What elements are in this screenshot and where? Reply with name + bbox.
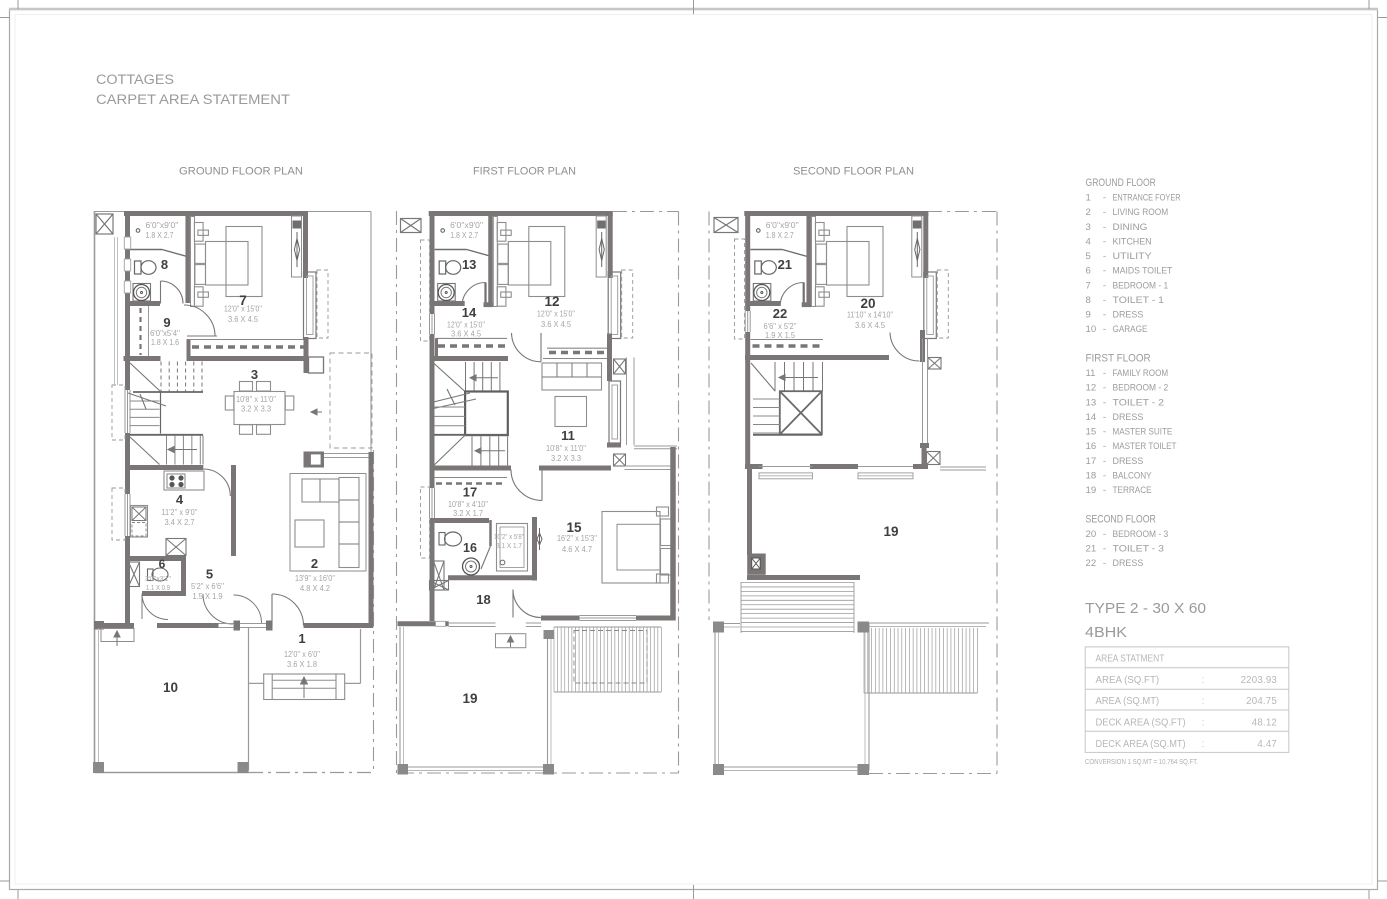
svg-text:1.5 X 1.9: 1.5 X 1.9 <box>193 592 224 601</box>
svg-text:BEDROOM - 2: BEDROOM - 2 <box>1113 383 1169 394</box>
svg-text:4.8 X 4.2: 4.8 X 4.2 <box>300 584 330 593</box>
svg-text:CONVERSION 1 SQ.MT = 10.764 SQ: CONVERSION 1 SQ.MT = 10.764 SQ.FT. <box>1085 757 1198 766</box>
svg-text:6'0''x9'0'': 6'0''x9'0'' <box>450 221 484 230</box>
svg-text:17: 17 <box>1086 456 1097 467</box>
svg-text:21: 21 <box>778 257 792 272</box>
svg-text:-: - <box>1103 207 1106 218</box>
svg-text:BEDROOM - 1: BEDROOM - 1 <box>1113 280 1169 291</box>
svg-text:DRESS: DRESS <box>1113 558 1144 569</box>
svg-text:16: 16 <box>1086 441 1097 452</box>
svg-text:FAMILY ROOM: FAMILY ROOM <box>1113 368 1169 379</box>
svg-text:11'10'' x 14'10'': 11'10'' x 14'10'' <box>847 311 893 320</box>
svg-text:11'2'' x 9'0'': 11'2'' x 9'0'' <box>162 508 198 517</box>
svg-text:5: 5 <box>206 567 213 582</box>
svg-text:18: 18 <box>1086 470 1097 481</box>
svg-text:20: 20 <box>860 296 875 311</box>
svg-text:-: - <box>1103 485 1106 496</box>
svg-text:3.6 X 1.8: 3.6 X 1.8 <box>287 660 318 669</box>
svg-text:-: - <box>1103 236 1106 247</box>
svg-text:6'0''x5'4'': 6'0''x5'4'' <box>150 329 180 338</box>
svg-text:1.8 X 1.6: 1.8 X 1.6 <box>151 338 179 347</box>
svg-text:FIRST FLOOR PLAN: FIRST FLOOR PLAN <box>473 166 576 178</box>
svg-text:10: 10 <box>1086 324 1097 335</box>
svg-text:6'0''x9'0'': 6'0''x9'0'' <box>146 221 180 230</box>
svg-text:16'2'' x 15'3'': 16'2'' x 15'3'' <box>557 534 597 543</box>
svg-text::: : <box>1202 718 1205 729</box>
svg-text:204.75: 204.75 <box>1246 696 1277 707</box>
svg-text:-: - <box>1103 383 1106 394</box>
svg-text:6'0''x9'0'': 6'0''x9'0'' <box>766 221 800 230</box>
svg-text:LIVING ROOM: LIVING ROOM <box>1113 207 1169 218</box>
svg-text:-: - <box>1103 470 1106 481</box>
svg-text:MASTER TOILET: MASTER TOILET <box>1113 441 1177 452</box>
svg-text:TYPE 2 - 30 X 60: TYPE 2 - 30 X 60 <box>1085 600 1206 617</box>
svg-text:12'0'' x 6'0'': 12'0'' x 6'0'' <box>284 650 320 659</box>
svg-text:-: - <box>1103 368 1106 379</box>
svg-text:GARAGE: GARAGE <box>1113 324 1148 335</box>
svg-text:20: 20 <box>1086 529 1097 540</box>
svg-text:KITCHEN: KITCHEN <box>1113 236 1152 247</box>
svg-text:6: 6 <box>1086 266 1091 277</box>
svg-text:22: 22 <box>773 306 787 321</box>
svg-text:13'9'' x 16'0'': 13'9'' x 16'0'' <box>295 574 335 583</box>
svg-text:1.1 X 0.9: 1.1 X 0.9 <box>146 585 170 592</box>
svg-text:3.6 X 4.5: 3.6 X 4.5 <box>451 330 482 339</box>
svg-text:7: 7 <box>1086 280 1091 291</box>
svg-text:COTTAGES: COTTAGES <box>96 72 174 88</box>
svg-text:12: 12 <box>544 294 559 309</box>
svg-text:-: - <box>1103 441 1106 452</box>
svg-text::: : <box>1202 675 1205 686</box>
svg-text::: : <box>1202 696 1205 707</box>
svg-text:3: 3 <box>1086 222 1091 233</box>
svg-text:-: - <box>1103 310 1106 321</box>
svg-text:DINING: DINING <box>1113 222 1148 233</box>
svg-text:TOILET - 2: TOILET - 2 <box>1113 397 1165 408</box>
svg-text:-: - <box>1103 280 1106 291</box>
svg-text:14: 14 <box>462 305 477 320</box>
svg-text:AREA STATMENT: AREA STATMENT <box>1096 654 1165 665</box>
svg-text:4BHK: 4BHK <box>1085 624 1127 641</box>
svg-text:2: 2 <box>311 556 318 571</box>
svg-text:10'2'' x 5'8'': 10'2'' x 5'8'' <box>494 532 525 541</box>
svg-text:12'0'' x 15'0'': 12'0'' x 15'0'' <box>224 305 262 314</box>
svg-text:8: 8 <box>161 257 168 272</box>
svg-text:3: 3 <box>251 367 258 382</box>
svg-text:-: - <box>1103 456 1106 467</box>
svg-text:12'0'' x 15'0'': 12'0'' x 15'0'' <box>537 310 575 319</box>
svg-text:12'0'' x 15'0'': 12'0'' x 15'0'' <box>447 321 485 330</box>
svg-text:10'8'' x 11'0'': 10'8'' x 11'0'' <box>236 395 276 404</box>
svg-text:6: 6 <box>159 557 166 571</box>
svg-text:18: 18 <box>476 592 490 607</box>
svg-text:10: 10 <box>163 680 178 695</box>
svg-text:1.8 X 2.7: 1.8 X 2.7 <box>450 231 478 240</box>
svg-text:3.6 X 4.5: 3.6 X 4.5 <box>855 321 886 330</box>
svg-text:19: 19 <box>462 691 477 706</box>
svg-text:-: - <box>1103 266 1106 277</box>
svg-text:GROUND FLOOR PLAN: GROUND FLOOR PLAN <box>179 166 303 178</box>
svg-text::: : <box>1202 739 1205 750</box>
svg-text:-: - <box>1103 427 1106 438</box>
svg-text:CARPET AREA STATEMENT: CARPET AREA STATEMENT <box>96 92 290 108</box>
svg-text:1.8 X 2.7: 1.8 X 2.7 <box>146 231 174 240</box>
svg-text:9: 9 <box>1086 310 1091 321</box>
svg-text:3.1 X 1.7: 3.1 X 1.7 <box>496 541 522 550</box>
svg-text:19: 19 <box>883 524 898 539</box>
svg-text:17: 17 <box>463 485 477 500</box>
svg-text:ENTRANCE FOYER: ENTRANCE FOYER <box>1113 193 1181 204</box>
svg-text:22: 22 <box>1086 558 1097 569</box>
svg-text:2203.93: 2203.93 <box>1241 675 1277 686</box>
svg-text:14: 14 <box>1086 412 1097 423</box>
svg-text:3.2 X 3.3: 3.2 X 3.3 <box>551 454 582 463</box>
svg-text:5'2'' x 6'6'': 5'2'' x 6'6'' <box>191 582 224 591</box>
svg-text:13: 13 <box>1086 397 1097 408</box>
svg-text:12: 12 <box>1086 383 1097 394</box>
svg-text:15: 15 <box>1086 427 1097 438</box>
svg-text:3.2 X 3.3: 3.2 X 3.3 <box>241 405 272 414</box>
svg-text:1: 1 <box>298 631 305 646</box>
svg-text:6'6'' x 5'2'': 6'6'' x 5'2'' <box>764 322 797 331</box>
svg-text:SECOND FLOOR PLAN: SECOND FLOOR PLAN <box>793 166 914 178</box>
svg-text:-: - <box>1103 544 1106 555</box>
svg-text:DECK AREA (SQ.MT): DECK AREA (SQ.MT) <box>1096 739 1186 750</box>
svg-text:15: 15 <box>566 520 582 535</box>
svg-text:-: - <box>1103 412 1106 423</box>
svg-text:TOILET - 1: TOILET - 1 <box>1113 295 1165 306</box>
svg-text:8: 8 <box>1086 295 1091 306</box>
svg-text:21: 21 <box>1086 544 1097 555</box>
svg-text:11: 11 <box>561 428 575 443</box>
svg-text:3.2 X 1.7: 3.2 X 1.7 <box>453 509 483 518</box>
svg-text:GROUND FLOOR: GROUND FLOOR <box>1086 177 1157 189</box>
svg-text:BALCONY: BALCONY <box>1113 470 1153 481</box>
svg-text:-: - <box>1103 558 1106 569</box>
svg-text:4.6 X 4.7: 4.6 X 4.7 <box>562 545 592 554</box>
svg-text:10'8'' x 11'0'': 10'8'' x 11'0'' <box>546 444 586 453</box>
svg-text:3.4 X 2.7: 3.4 X 2.7 <box>165 518 195 527</box>
svg-text:-: - <box>1103 222 1106 233</box>
svg-text:-: - <box>1103 193 1106 204</box>
svg-text:16: 16 <box>463 541 477 555</box>
svg-text:DRESS: DRESS <box>1113 310 1144 321</box>
svg-text:10'8'' x 4'10'': 10'8'' x 4'10'' <box>448 500 488 509</box>
svg-text:4: 4 <box>176 492 184 507</box>
svg-text:19: 19 <box>1086 485 1097 496</box>
svg-text:3.6 X 4.5: 3.6 X 4.5 <box>228 315 259 324</box>
svg-text:-: - <box>1103 295 1106 306</box>
svg-text:AREA (SQ.MT): AREA (SQ.MT) <box>1096 696 1160 707</box>
svg-text:1.9 X 1.5: 1.9 X 1.5 <box>765 331 796 340</box>
svg-text:BEDROOM - 3: BEDROOM - 3 <box>1113 529 1169 540</box>
svg-text:DRESS: DRESS <box>1113 412 1144 423</box>
svg-text:5: 5 <box>1086 251 1091 262</box>
svg-text:11: 11 <box>1086 368 1096 379</box>
svg-text:DECK AREA (SQ.FT): DECK AREA (SQ.FT) <box>1096 718 1186 729</box>
svg-text:4: 4 <box>1086 236 1092 247</box>
svg-text:MAIDS TOILET: MAIDS TOILET <box>1113 266 1173 277</box>
svg-text:3.6 X 4.5: 3.6 X 4.5 <box>541 320 572 329</box>
svg-text:TOILET - 3: TOILET - 3 <box>1113 544 1165 555</box>
svg-text:TERRACE: TERRACE <box>1113 485 1152 496</box>
svg-text:48.12: 48.12 <box>1252 718 1277 729</box>
svg-text:13: 13 <box>462 257 476 272</box>
svg-text:UTILITY: UTILITY <box>1113 251 1153 262</box>
svg-text:-: - <box>1103 397 1106 408</box>
svg-text:2: 2 <box>1086 207 1091 218</box>
svg-text:DRESS: DRESS <box>1113 456 1144 467</box>
svg-text:9: 9 <box>163 315 170 330</box>
svg-text:-: - <box>1103 251 1106 262</box>
svg-text:MASTER SUITE: MASTER SUITE <box>1113 427 1173 438</box>
svg-text:SECOND FLOOR: SECOND FLOOR <box>1086 513 1157 525</box>
svg-text:-: - <box>1103 529 1106 540</box>
svg-text:1: 1 <box>1086 193 1091 204</box>
svg-text:3'0''x3'1'': 3'0''x3'1'' <box>145 576 171 583</box>
svg-text:AREA (SQ.FT): AREA (SQ.FT) <box>1096 675 1160 686</box>
svg-text:4.47: 4.47 <box>1257 739 1277 750</box>
svg-text:FIRST FLOOR: FIRST FLOOR <box>1086 352 1151 364</box>
svg-text:1.8 X 2.7: 1.8 X 2.7 <box>766 231 794 240</box>
svg-text:-: - <box>1103 324 1106 335</box>
